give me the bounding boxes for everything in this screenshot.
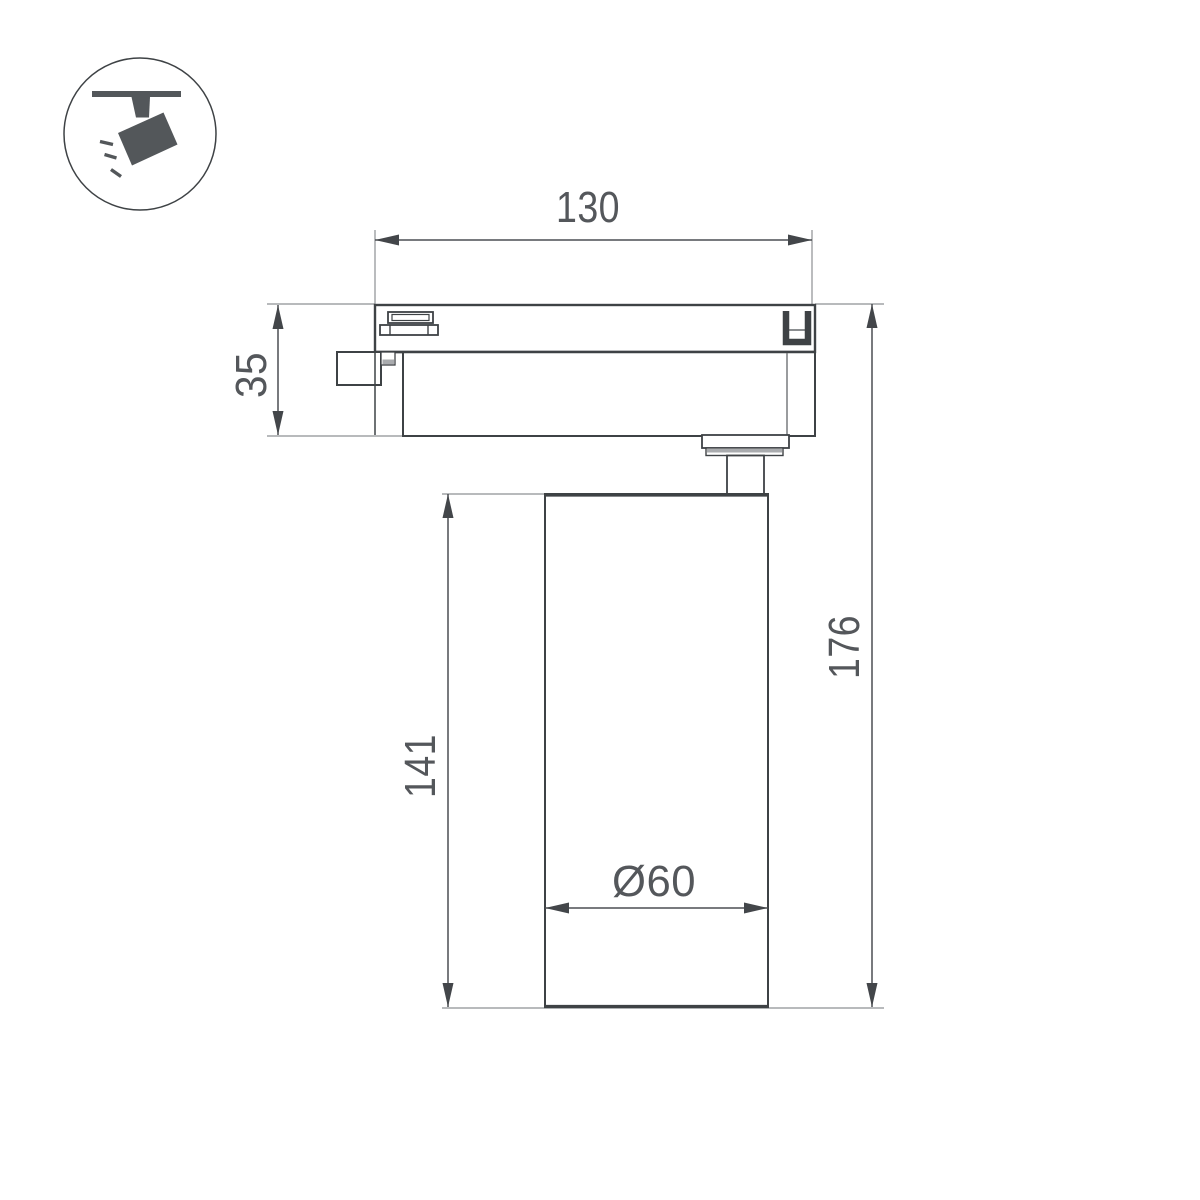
dim-label-head-height: 35 (227, 352, 276, 398)
icon-track-bar (92, 91, 181, 97)
technical-dimension-drawing: 130 35 141 176 Ø60 (0, 0, 1200, 1200)
swivel-stem (727, 456, 764, 495)
connector-step-wide (702, 435, 789, 448)
adapter-lower-body (403, 352, 815, 436)
adapter-upper-housing (375, 305, 815, 352)
lamp-cylinder (545, 494, 768, 1007)
track-spotlight-icon (64, 58, 216, 210)
dim-label-total-height: 176 (820, 615, 869, 679)
fixture-outline (337, 305, 815, 1007)
dim-label-diameter: Ø60 (612, 857, 696, 906)
connector-step-shade (707, 449, 782, 453)
dim-label-width: 130 (556, 183, 620, 232)
dim-label-body-height: 141 (396, 734, 445, 798)
lever-latch-shade (383, 360, 395, 365)
